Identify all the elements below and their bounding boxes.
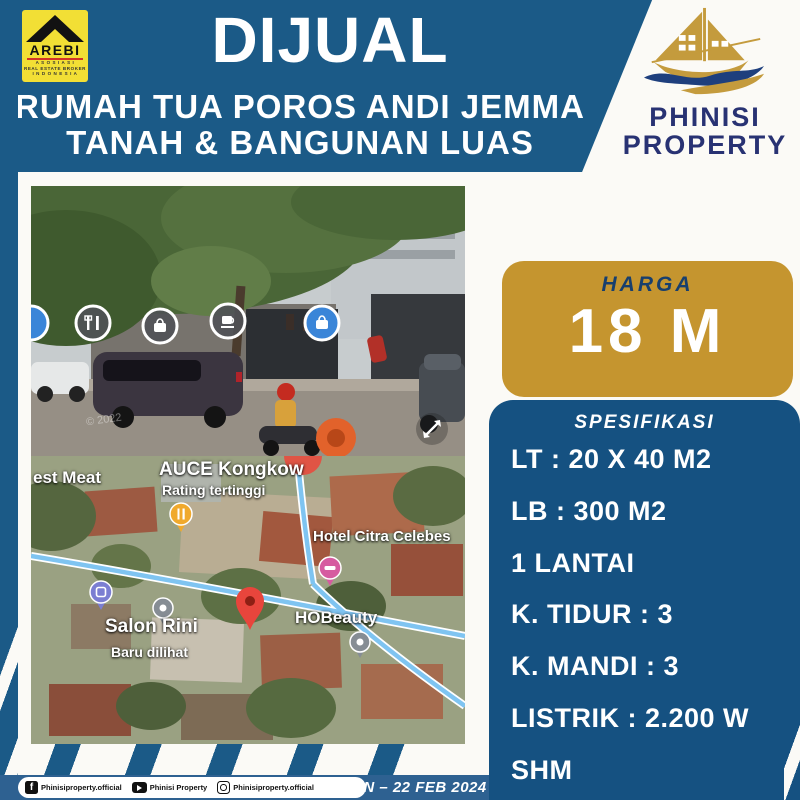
instagram-icon — [217, 781, 230, 794]
brand-line1: PHINISI — [612, 103, 798, 131]
bottom-stripes — [0, 744, 436, 778]
spec-card: SPESIFIKASI LT : 20 X 40 M2 LB : 300 M2 … — [489, 400, 800, 800]
brand-line2: PROPERTY — [612, 131, 798, 159]
youtube-icon — [132, 782, 147, 793]
spec-item-listrik: LISTRIK : 2.200 W — [511, 703, 788, 734]
subtitle-line1: RUMAH TUA POROS ANDI JEMMA — [10, 88, 590, 126]
facebook-icon — [25, 781, 38, 794]
instagram-link[interactable]: Phinisiproperty.official — [217, 781, 314, 794]
expand-icon — [416, 413, 448, 445]
price-label: HARGA — [502, 273, 793, 297]
subtitle-line2: TANAH & BANGUNAN LUAS — [10, 124, 590, 162]
map-label-hobeauty: HOBeauty — [295, 608, 377, 628]
shopping-poi-active-icon — [305, 306, 339, 340]
price-card: HARGA 18 M — [502, 261, 793, 397]
spec-item-lb: LB : 300 M2 — [511, 496, 788, 527]
cafe-poi-icon — [211, 304, 245, 338]
flyer: DIJUAL RUMAH TUA POROS ANDI JEMMA TANAH … — [0, 0, 800, 800]
phinisi-logo: PHINISI PROPERTY — [612, 6, 798, 159]
youtube-handle: Phinisi Property — [150, 783, 208, 792]
street-photo: © 2022 — [31, 186, 465, 456]
map-background — [31, 456, 465, 744]
map-label-hotel-citra: Hotel Citra Celebes — [313, 528, 451, 545]
spec-item-shm: SHM — [511, 755, 788, 786]
phinisi-ship-icon — [642, 6, 768, 98]
footer-date: AN – 22 FEB 2024 — [352, 779, 487, 796]
spec-item-lantai: 1 LANTAI — [511, 548, 788, 579]
arebi-logo: AREBI A S O S I A S I REAL ESTATE BROKER… — [22, 10, 88, 82]
price-value: 18 M — [502, 299, 793, 365]
map-image: est Meat AUCE Kongkow Rating tertinggi H… — [31, 456, 465, 744]
map-label-rating: Rating tertinggi — [162, 482, 265, 498]
spec-item-kamar-tidur: K. TIDUR : 3 — [511, 599, 788, 630]
facebook-link[interactable]: Phinisiproperty.official — [25, 781, 122, 794]
map-label-est-meat: est Meat — [33, 468, 101, 488]
arebi-sub3: I N D O N E S I A — [22, 71, 88, 77]
spec-item-kamar-mandi: K. MANDI : 3 — [511, 651, 788, 682]
social-links: Phinisiproperty.official Phinisi Propert… — [18, 777, 366, 798]
shopping-poi-icon — [143, 309, 177, 343]
map-label-salon-rini: Salon Rini — [105, 616, 198, 638]
spec-header: SPESIFIKASI — [489, 412, 800, 434]
map-label-baru-dilihat: Baru dilihat — [111, 644, 188, 660]
page-title: DIJUAL — [150, 2, 510, 78]
spec-list: LT : 20 X 40 M2 LB : 300 M2 1 LANTAI K. … — [511, 444, 788, 786]
facebook-handle: Phinisiproperty.official — [41, 783, 122, 792]
restaurant-poi-icon — [76, 306, 110, 340]
arebi-name: AREBI — [27, 43, 82, 60]
map-label-auce-kongkow: AUCE Kongkow — [159, 459, 304, 481]
arebi-roof-icon — [26, 14, 84, 42]
youtube-link[interactable]: Phinisi Property — [132, 782, 208, 793]
right-edge-stripes — [784, 640, 800, 800]
instagram-handle: Phinisiproperty.official — [233, 783, 314, 792]
spec-item-lt: LT : 20 X 40 M2 — [511, 444, 788, 475]
